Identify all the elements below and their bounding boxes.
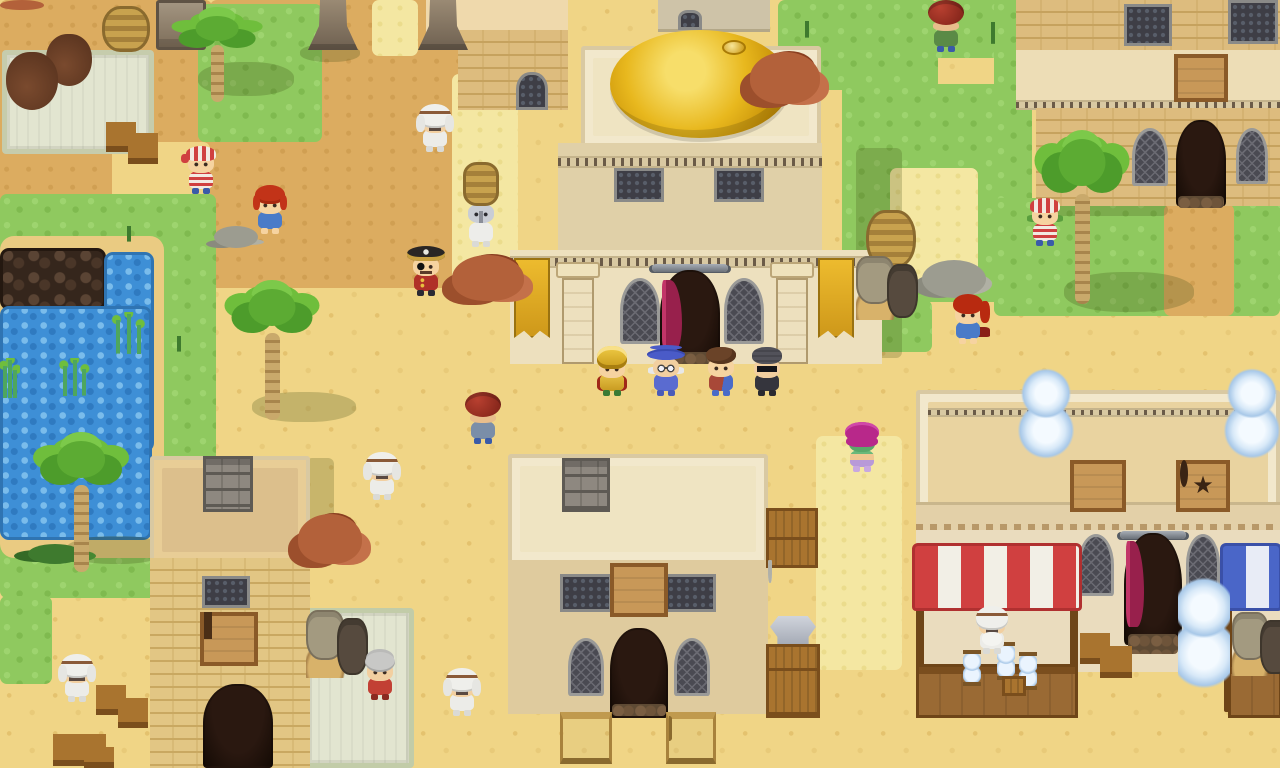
pot-carrier-body	[934, 29, 958, 47]
basket-porter-body	[469, 222, 493, 242]
palm-tree	[166, 0, 268, 102]
blacksmith-sign[interactable]	[610, 563, 668, 617]
sprout	[106, 212, 152, 242]
seaweed	[58, 358, 90, 396]
street-hourglass[interactable]	[1178, 556, 1230, 696]
crate-hourglass	[118, 676, 148, 728]
pirate-captain[interactable]	[404, 246, 448, 308]
veiled-dancer-hat	[845, 422, 879, 442]
rooftop-hourglass	[1018, 352, 1074, 464]
sprout	[786, 6, 828, 38]
sprout	[968, 2, 1018, 44]
dark-jug	[468, 306, 500, 360]
smithy-steps	[612, 704, 666, 716]
palm-tree	[24, 416, 138, 572]
hooded-thief[interactable]	[746, 346, 788, 402]
white-robed-elder[interactable]	[441, 666, 483, 722]
monkey[interactable]	[616, 462, 660, 510]
crate-stack	[766, 508, 818, 568]
white-robed-elder-hat	[366, 452, 398, 476]
golden-knight[interactable]	[590, 346, 634, 402]
blue-mage[interactable]	[644, 346, 688, 402]
pot-carrier-body	[471, 421, 495, 439]
grandma-hat	[365, 652, 395, 672]
blue-mage-hat	[647, 349, 685, 360]
smithy-vent	[560, 574, 612, 612]
crate-hourglass	[1100, 622, 1132, 678]
crate-stack	[766, 644, 820, 718]
clay-rocks	[750, 52, 820, 104]
gray-stones	[922, 260, 986, 298]
sword-rack-single[interactable]	[666, 712, 716, 764]
small-crate	[1002, 676, 1026, 696]
pot-cluster	[856, 256, 918, 320]
smithy-window	[568, 638, 604, 696]
stone-chimney	[562, 458, 610, 512]
veiled-dancer[interactable]	[841, 422, 883, 478]
pot-cluster	[1232, 612, 1280, 676]
golden-knight-hat	[597, 346, 627, 369]
basket-porter-hat	[463, 162, 499, 206]
brown-haired-kid-hat	[706, 347, 736, 364]
hooded-thief-hat	[752, 347, 782, 364]
clay-rocks	[298, 514, 362, 564]
stall-merchant-hat	[976, 606, 1008, 630]
white-robed-elder-hat	[446, 668, 478, 692]
pirate-captain-hat	[407, 246, 445, 261]
pirate-bandana-kid-hat	[186, 146, 216, 161]
crate-hourglass	[128, 110, 158, 164]
game-viewport[interactable]: ★	[0, 0, 1280, 768]
seaweed	[0, 358, 20, 398]
sprout	[158, 322, 200, 352]
grandma[interactable]	[360, 650, 400, 706]
palm-tree	[1026, 108, 1138, 304]
pot-carrier[interactable]	[926, 0, 966, 56]
clay-table	[768, 562, 822, 624]
seaweed	[110, 312, 146, 354]
crossed-swords-emblem	[518, 620, 564, 666]
red-haired-woman-hat	[953, 294, 983, 314]
pot-carrier[interactable]	[462, 392, 504, 454]
crossed-swords-emblem	[722, 620, 768, 666]
stall-merchant[interactable]	[970, 604, 1014, 670]
pirate-bandana-kid-body	[189, 171, 213, 189]
smithy-vent	[664, 574, 716, 612]
crate-hourglass	[84, 733, 114, 768]
red-haired-girl-hat	[255, 185, 285, 204]
smithy-window	[674, 638, 710, 696]
stone-chimney	[203, 456, 253, 512]
clay-rocks	[452, 255, 524, 301]
rooftop-hourglass	[1224, 352, 1280, 464]
white-robed-elder[interactable]	[56, 652, 98, 708]
clay-urn	[14, 0, 46, 46]
white-robed-elder[interactable]	[361, 450, 403, 504]
veiled-dancer-body	[850, 450, 874, 467]
white-robed-elder-hat	[419, 104, 451, 128]
genie-bottle-blue[interactable]	[96, 44, 156, 104]
basket-porter[interactable]	[458, 162, 504, 250]
brown-vase	[108, 608, 140, 662]
genie-bottle-purple[interactable]	[2, 100, 54, 156]
white-robed-elder-hat	[61, 654, 93, 678]
basket-porter-head	[468, 204, 494, 223]
pot-carrier-hat	[465, 392, 501, 417]
sword-rack-double[interactable]	[560, 712, 612, 764]
blue-mage-head	[653, 358, 679, 377]
genie-bottle-purple[interactable]	[310, 660, 356, 714]
white-robed-elder[interactable]	[414, 102, 456, 154]
red-haired-woman[interactable]	[946, 294, 990, 352]
palm-tree	[216, 264, 328, 420]
pot-carrier-hat	[928, 0, 964, 25]
brown-haired-kid[interactable]	[700, 346, 742, 402]
gold-sack[interactable]	[304, 710, 358, 768]
pirate-bandana-kid[interactable]	[181, 144, 221, 196]
red-haired-girl[interactable]	[250, 184, 290, 236]
